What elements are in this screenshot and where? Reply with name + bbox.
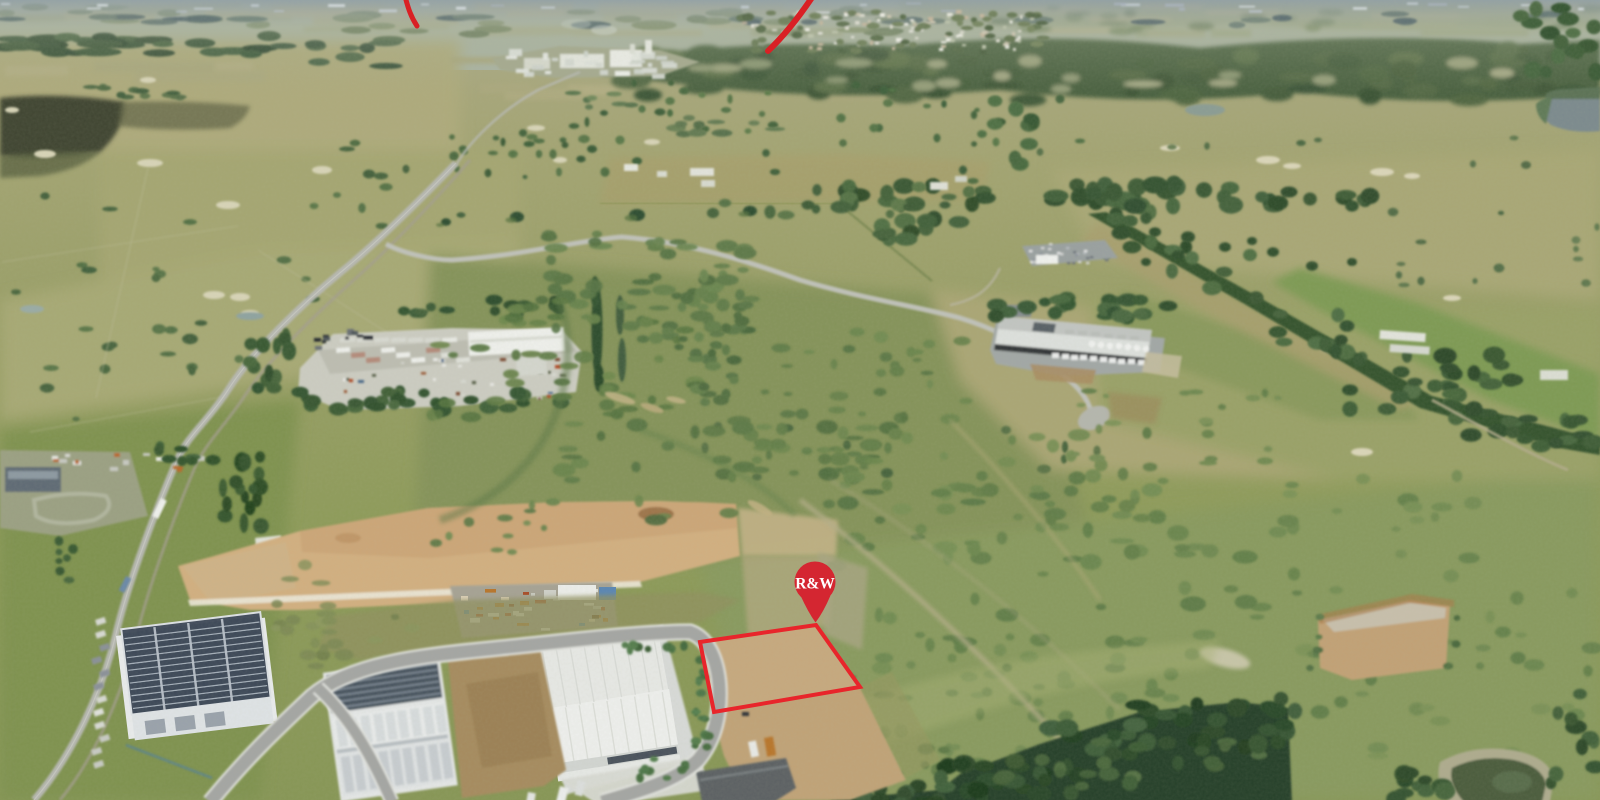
- svg-text:R&W: R&W: [795, 576, 835, 593]
